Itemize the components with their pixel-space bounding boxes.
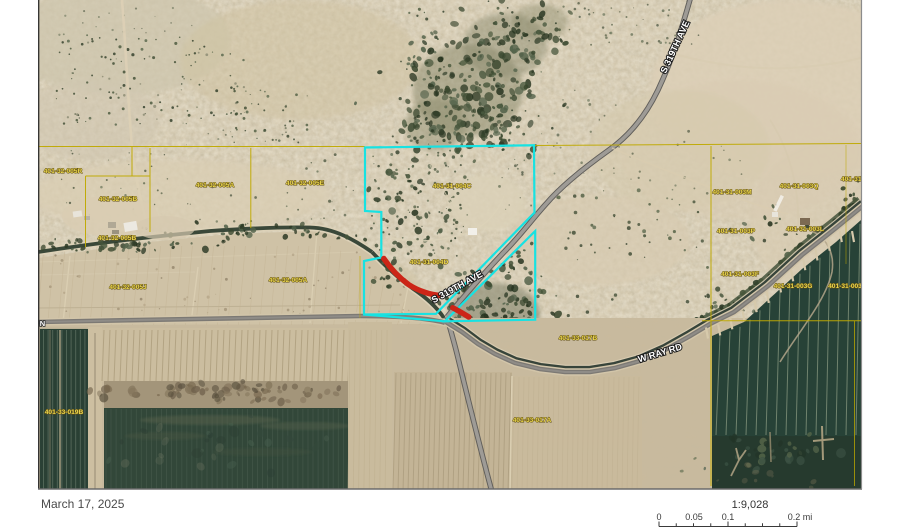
svg-text:0: 0 [656, 512, 661, 522]
svg-text:0.1: 0.1 [722, 512, 735, 522]
svg-text:0.2 mi: 0.2 mi [788, 512, 813, 522]
svg-text:0.05: 0.05 [685, 512, 703, 522]
